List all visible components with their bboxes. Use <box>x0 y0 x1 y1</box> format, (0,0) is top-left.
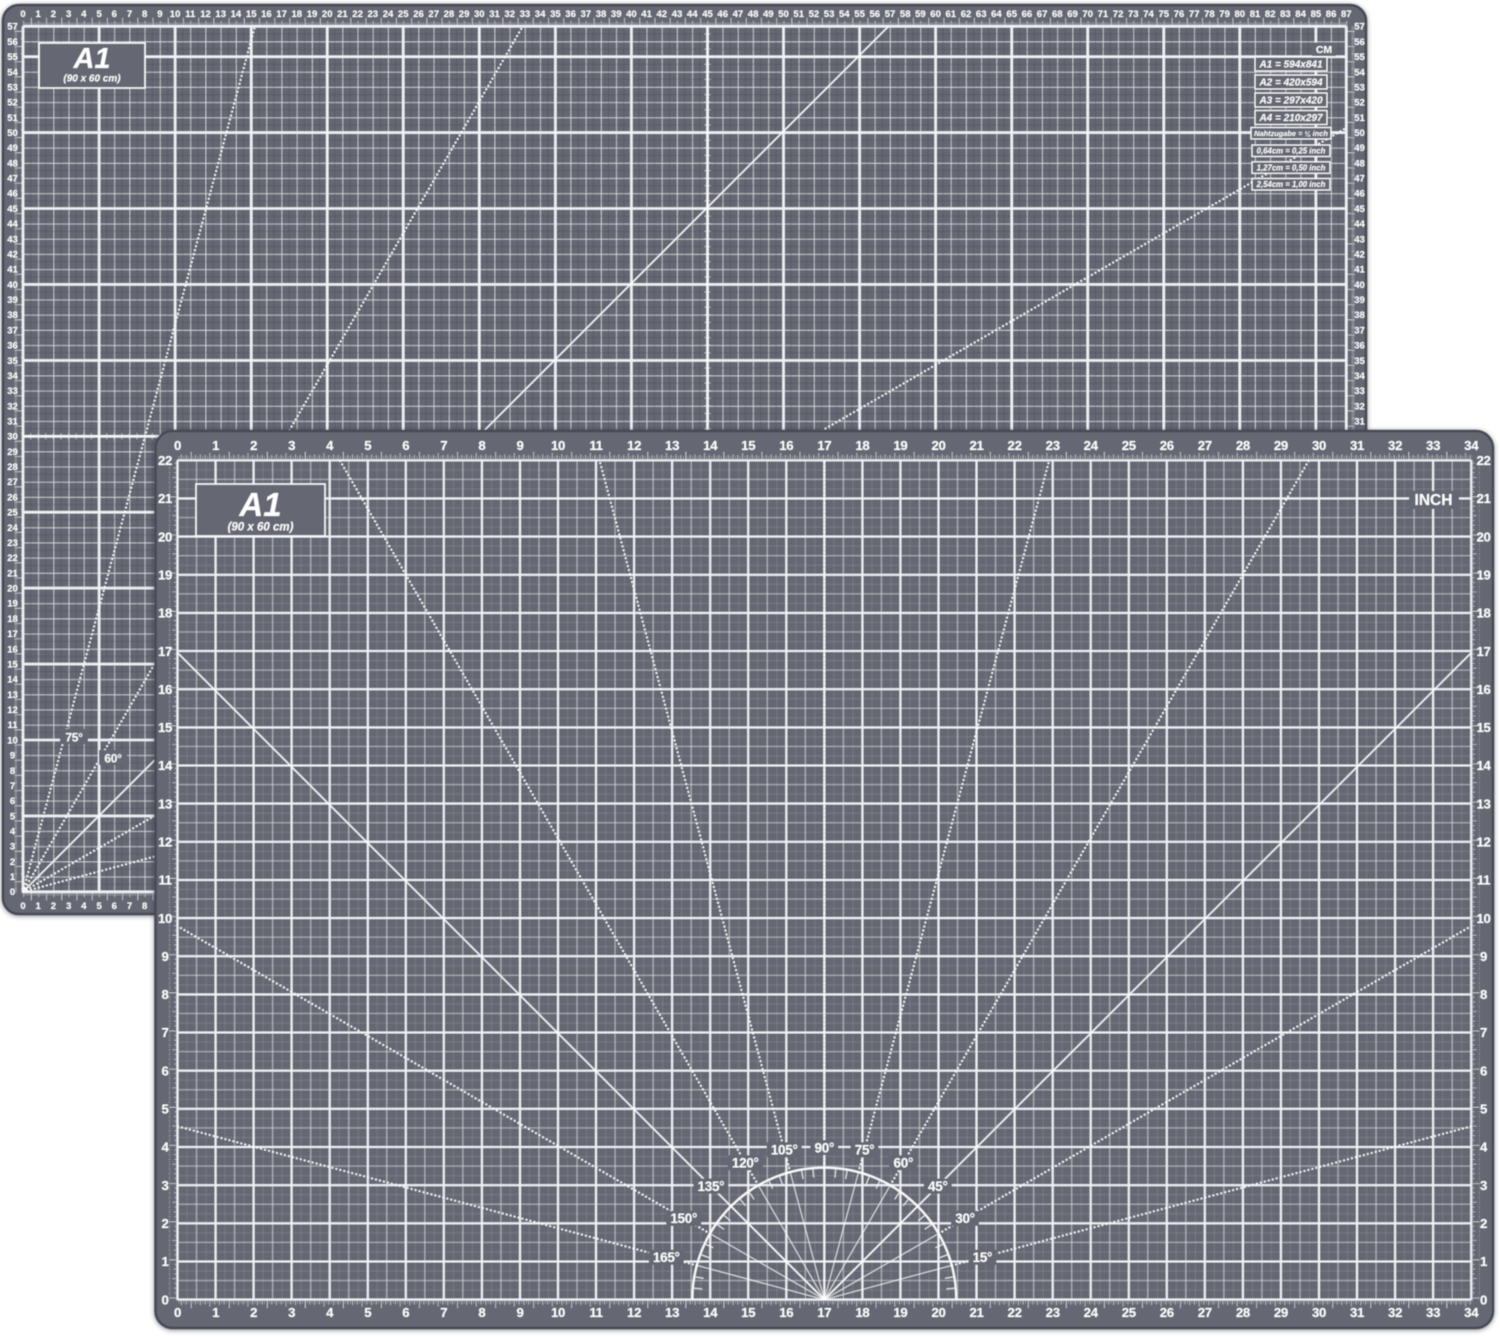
svg-text:0: 0 <box>10 887 15 898</box>
svg-text:3: 3 <box>288 438 295 453</box>
svg-text:16: 16 <box>261 9 272 20</box>
svg-text:17: 17 <box>1476 644 1490 659</box>
svg-text:90°: 90° <box>815 1140 835 1155</box>
svg-text:75°: 75° <box>65 731 83 745</box>
svg-text:47: 47 <box>1354 174 1365 185</box>
svg-text:26: 26 <box>7 492 18 503</box>
svg-text:35: 35 <box>550 9 561 20</box>
svg-text:62: 62 <box>961 9 972 20</box>
svg-text:6: 6 <box>112 901 117 912</box>
svg-text:10: 10 <box>158 911 172 926</box>
svg-text:21: 21 <box>969 1305 983 1320</box>
svg-text:31: 31 <box>1354 417 1365 428</box>
svg-text:48: 48 <box>748 9 759 20</box>
svg-text:5: 5 <box>10 811 16 822</box>
svg-text:26: 26 <box>1160 438 1174 453</box>
svg-text:25: 25 <box>1122 1305 1136 1320</box>
svg-text:35: 35 <box>7 356 18 367</box>
svg-text:15: 15 <box>246 9 257 20</box>
svg-text:20: 20 <box>1476 529 1490 544</box>
svg-text:9: 9 <box>516 1305 523 1320</box>
svg-text:19: 19 <box>7 599 18 610</box>
svg-text:1: 1 <box>10 872 16 883</box>
svg-text:0: 0 <box>20 901 25 912</box>
svg-text:78: 78 <box>1204 9 1215 20</box>
svg-text:9: 9 <box>161 949 168 964</box>
svg-text:28: 28 <box>1236 1305 1250 1320</box>
svg-text:25: 25 <box>7 508 18 519</box>
svg-text:20: 20 <box>931 438 945 453</box>
svg-text:4: 4 <box>326 1305 334 1320</box>
svg-text:150°: 150° <box>670 1211 697 1226</box>
svg-text:1: 1 <box>212 1305 219 1320</box>
svg-text:28: 28 <box>7 462 18 473</box>
svg-text:21: 21 <box>337 9 348 20</box>
svg-text:60°: 60° <box>894 1156 914 1171</box>
svg-text:6: 6 <box>402 438 409 453</box>
svg-text:2: 2 <box>51 9 56 20</box>
svg-text:18: 18 <box>1476 606 1490 621</box>
svg-text:81: 81 <box>1250 9 1261 20</box>
svg-text:8: 8 <box>142 901 147 912</box>
svg-text:52: 52 <box>1354 98 1365 109</box>
svg-text:43: 43 <box>672 9 683 20</box>
svg-text:INCH: INCH <box>1415 492 1453 509</box>
svg-text:59: 59 <box>915 9 926 20</box>
svg-text:6: 6 <box>402 1305 409 1320</box>
svg-text:22: 22 <box>158 453 172 468</box>
svg-text:2: 2 <box>10 857 15 868</box>
svg-text:19: 19 <box>893 438 907 453</box>
svg-text:0: 0 <box>161 1292 168 1307</box>
svg-text:3: 3 <box>1480 1178 1487 1193</box>
svg-text:44: 44 <box>687 9 698 20</box>
svg-text:37: 37 <box>7 325 18 336</box>
svg-text:11: 11 <box>1477 873 1490 888</box>
svg-text:5: 5 <box>364 438 371 453</box>
svg-text:32: 32 <box>7 401 18 412</box>
svg-text:21: 21 <box>969 438 983 453</box>
svg-text:49: 49 <box>7 143 18 154</box>
svg-text:46: 46 <box>7 189 18 200</box>
svg-text:75°: 75° <box>855 1143 875 1158</box>
svg-text:5: 5 <box>96 9 102 20</box>
svg-text:5: 5 <box>364 1305 371 1320</box>
svg-text:45: 45 <box>7 204 18 215</box>
svg-text:53: 53 <box>1354 82 1365 93</box>
svg-text:33: 33 <box>520 9 531 20</box>
svg-text:7: 7 <box>127 9 132 20</box>
svg-text:17: 17 <box>817 438 831 453</box>
svg-text:7: 7 <box>440 438 447 453</box>
svg-text:30: 30 <box>474 9 485 20</box>
svg-text:12: 12 <box>158 835 172 850</box>
svg-text:6: 6 <box>1480 1063 1487 1078</box>
svg-text:30: 30 <box>1312 1305 1326 1320</box>
svg-text:34: 34 <box>1464 1305 1479 1320</box>
svg-text:10: 10 <box>551 1305 565 1320</box>
svg-text:79: 79 <box>1219 9 1230 20</box>
svg-text:18: 18 <box>292 9 303 20</box>
svg-text:46: 46 <box>717 9 728 20</box>
svg-text:42: 42 <box>7 250 18 261</box>
svg-text:56: 56 <box>870 9 881 20</box>
svg-text:36: 36 <box>565 9 576 20</box>
svg-text:16: 16 <box>7 644 18 655</box>
svg-text:27: 27 <box>1198 1305 1212 1320</box>
svg-text:39: 39 <box>611 9 622 20</box>
svg-text:18: 18 <box>855 438 869 453</box>
svg-text:34: 34 <box>7 371 18 382</box>
svg-text:44: 44 <box>7 219 18 230</box>
svg-text:39: 39 <box>1354 295 1365 306</box>
svg-text:(90 x 60 cm): (90 x 60 cm) <box>63 74 121 85</box>
svg-text:60°: 60° <box>104 752 122 766</box>
svg-text:64: 64 <box>991 9 1002 20</box>
svg-text:17: 17 <box>817 1305 831 1320</box>
svg-text:29: 29 <box>1274 438 1288 453</box>
svg-text:49: 49 <box>1354 143 1365 154</box>
svg-text:15: 15 <box>7 660 18 671</box>
svg-text:5: 5 <box>96 901 102 912</box>
svg-text:67: 67 <box>1037 9 1048 20</box>
svg-text:1: 1 <box>212 438 219 453</box>
svg-text:36: 36 <box>1354 341 1365 352</box>
svg-text:53: 53 <box>7 82 18 93</box>
svg-text:120°: 120° <box>732 1156 759 1171</box>
svg-text:45: 45 <box>702 9 713 20</box>
svg-text:30°: 30° <box>955 1211 975 1226</box>
svg-text:10: 10 <box>170 9 181 20</box>
svg-text:3: 3 <box>66 9 71 20</box>
svg-text:4: 4 <box>1480 1140 1488 1155</box>
svg-text:27: 27 <box>1198 438 1212 453</box>
svg-text:16: 16 <box>158 682 172 697</box>
svg-text:34: 34 <box>1354 371 1365 382</box>
svg-text:33: 33 <box>1426 1305 1440 1320</box>
svg-text:20: 20 <box>931 1305 945 1320</box>
svg-text:19: 19 <box>1476 568 1490 583</box>
svg-text:37: 37 <box>1354 325 1365 336</box>
svg-text:86: 86 <box>1326 9 1337 20</box>
svg-text:1: 1 <box>161 1254 168 1269</box>
svg-text:22: 22 <box>352 9 363 20</box>
svg-text:3: 3 <box>161 1178 168 1193</box>
svg-text:A1 = 594x841: A1 = 594x841 <box>1258 60 1323 71</box>
svg-text:15: 15 <box>741 1305 755 1320</box>
svg-text:2: 2 <box>250 1305 257 1320</box>
svg-text:19: 19 <box>893 1305 907 1320</box>
svg-text:5: 5 <box>1480 1102 1487 1117</box>
svg-text:14: 14 <box>7 675 18 686</box>
svg-text:34: 34 <box>1464 438 1479 453</box>
svg-text:57: 57 <box>7 22 18 33</box>
svg-text:11: 11 <box>7 720 18 731</box>
svg-text:8: 8 <box>478 438 485 453</box>
svg-text:61: 61 <box>946 9 957 20</box>
svg-text:135°: 135° <box>698 1179 725 1194</box>
svg-text:15°: 15° <box>973 1250 993 1265</box>
svg-text:33: 33 <box>1426 438 1440 453</box>
svg-text:11: 11 <box>158 873 171 888</box>
svg-text:24: 24 <box>7 523 18 534</box>
svg-text:73: 73 <box>1128 9 1139 20</box>
svg-text:31: 31 <box>489 9 500 20</box>
svg-text:8: 8 <box>142 9 147 20</box>
svg-text:22: 22 <box>7 553 18 564</box>
svg-text:41: 41 <box>7 265 18 276</box>
svg-text:58: 58 <box>900 9 911 20</box>
svg-text:4: 4 <box>81 901 87 912</box>
svg-text:9: 9 <box>10 751 15 762</box>
svg-text:14: 14 <box>703 1305 718 1320</box>
svg-text:40: 40 <box>7 280 18 291</box>
svg-text:(90 x 60 cm): (90 x 60 cm) <box>228 522 294 534</box>
svg-text:56: 56 <box>7 37 18 48</box>
svg-text:18: 18 <box>7 614 18 625</box>
svg-text:55: 55 <box>7 52 18 63</box>
svg-text:20: 20 <box>322 9 333 20</box>
svg-text:83: 83 <box>1280 9 1291 20</box>
svg-text:75: 75 <box>1159 9 1170 20</box>
svg-text:A4 = 210x297: A4 = 210x297 <box>1258 113 1323 124</box>
svg-text:A1: A1 <box>238 486 281 523</box>
svg-text:66: 66 <box>1022 9 1033 20</box>
svg-text:51: 51 <box>793 9 804 20</box>
svg-text:3: 3 <box>66 901 71 912</box>
svg-text:37: 37 <box>581 9 592 20</box>
svg-text:14: 14 <box>703 438 718 453</box>
svg-text:22: 22 <box>1008 438 1022 453</box>
svg-text:14: 14 <box>231 9 242 20</box>
svg-text:7: 7 <box>161 1025 168 1040</box>
svg-text:57: 57 <box>885 9 896 20</box>
svg-text:13: 13 <box>215 9 226 20</box>
svg-text:50: 50 <box>7 128 18 139</box>
svg-text:2,54cm = 1,00 inch: 2,54cm = 1,00 inch <box>1256 180 1326 189</box>
svg-text:25: 25 <box>1122 438 1136 453</box>
svg-text:44: 44 <box>1354 219 1365 230</box>
svg-text:82: 82 <box>1265 9 1276 20</box>
svg-text:49: 49 <box>763 9 774 20</box>
svg-text:19: 19 <box>307 9 318 20</box>
svg-text:18: 18 <box>158 606 172 621</box>
svg-text:6: 6 <box>161 1063 168 1078</box>
svg-text:55: 55 <box>854 9 865 20</box>
svg-text:13: 13 <box>665 1305 679 1320</box>
svg-text:71: 71 <box>1098 9 1109 20</box>
svg-text:21: 21 <box>158 491 172 506</box>
svg-text:17: 17 <box>276 9 287 20</box>
svg-text:21: 21 <box>7 568 18 579</box>
svg-text:23: 23 <box>368 9 379 20</box>
svg-text:34: 34 <box>535 9 546 20</box>
svg-text:80: 80 <box>1235 9 1246 20</box>
svg-text:A2 = 420x594: A2 = 420x594 <box>1258 78 1323 89</box>
svg-text:43: 43 <box>1354 234 1365 245</box>
svg-text:33: 33 <box>1354 386 1365 397</box>
svg-text:29: 29 <box>459 9 470 20</box>
svg-text:69: 69 <box>1067 9 1078 20</box>
svg-text:0: 0 <box>1480 1292 1487 1307</box>
svg-text:8: 8 <box>478 1305 485 1320</box>
svg-text:16: 16 <box>779 438 793 453</box>
svg-text:4: 4 <box>326 438 334 453</box>
svg-text:23: 23 <box>7 538 18 549</box>
svg-text:7: 7 <box>10 781 15 792</box>
svg-text:57: 57 <box>1354 22 1365 33</box>
svg-text:4: 4 <box>161 1140 169 1155</box>
svg-text:28: 28 <box>444 9 455 20</box>
svg-text:31: 31 <box>1350 438 1364 453</box>
svg-text:3: 3 <box>288 1305 295 1320</box>
svg-text:28: 28 <box>1236 438 1250 453</box>
svg-text:12: 12 <box>1476 835 1490 850</box>
svg-text:40: 40 <box>626 9 637 20</box>
svg-text:30: 30 <box>7 432 18 443</box>
svg-text:8: 8 <box>10 766 15 777</box>
svg-text:31: 31 <box>7 417 18 428</box>
svg-text:45°: 45° <box>928 1179 948 1194</box>
svg-text:Nahtzugabe = ¼ inch: Nahtzugabe = ¼ inch <box>1254 129 1328 138</box>
svg-text:16: 16 <box>779 1305 793 1320</box>
svg-text:45: 45 <box>1354 204 1365 215</box>
svg-text:20: 20 <box>158 529 172 544</box>
svg-text:32: 32 <box>1354 401 1365 412</box>
svg-text:68: 68 <box>1052 9 1063 20</box>
svg-text:15: 15 <box>1476 720 1490 735</box>
svg-text:0: 0 <box>174 438 181 453</box>
svg-text:4: 4 <box>10 827 16 838</box>
svg-text:56: 56 <box>1354 37 1365 48</box>
svg-text:0: 0 <box>174 1305 181 1320</box>
svg-text:1: 1 <box>36 901 42 912</box>
svg-text:20: 20 <box>7 584 18 595</box>
svg-text:12: 12 <box>7 705 18 716</box>
svg-text:2: 2 <box>51 901 56 912</box>
svg-text:9: 9 <box>516 438 523 453</box>
svg-text:6: 6 <box>112 9 117 20</box>
svg-text:23: 23 <box>1046 438 1060 453</box>
svg-text:2: 2 <box>1480 1216 1487 1231</box>
svg-text:11: 11 <box>589 438 602 453</box>
svg-text:12: 12 <box>627 438 641 453</box>
svg-text:29: 29 <box>7 447 18 458</box>
svg-text:10: 10 <box>551 438 565 453</box>
svg-text:85: 85 <box>1311 9 1322 20</box>
svg-text:54: 54 <box>7 67 18 78</box>
svg-text:39: 39 <box>7 295 18 306</box>
svg-text:17: 17 <box>7 629 18 640</box>
svg-text:7: 7 <box>1480 1025 1487 1040</box>
svg-text:9: 9 <box>157 9 162 20</box>
svg-text:24: 24 <box>383 9 394 20</box>
svg-text:0,64cm = 0,25 inch: 0,64cm = 0,25 inch <box>1257 147 1326 156</box>
svg-text:72: 72 <box>1113 9 1124 20</box>
svg-text:36: 36 <box>7 341 18 352</box>
svg-text:54: 54 <box>1354 67 1365 78</box>
svg-text:32: 32 <box>1388 1305 1402 1320</box>
svg-text:24: 24 <box>1084 438 1099 453</box>
svg-text:16: 16 <box>1476 682 1490 697</box>
svg-text:27: 27 <box>428 9 439 20</box>
svg-text:165°: 165° <box>653 1250 680 1265</box>
svg-text:51: 51 <box>1354 113 1365 124</box>
svg-text:26: 26 <box>1160 1305 1174 1320</box>
svg-text:38: 38 <box>7 310 18 321</box>
svg-text:48: 48 <box>7 158 18 169</box>
svg-text:53: 53 <box>824 9 835 20</box>
svg-text:6: 6 <box>10 796 15 807</box>
svg-text:21: 21 <box>1476 491 1490 506</box>
svg-text:38: 38 <box>1354 310 1365 321</box>
svg-text:14: 14 <box>1476 758 1491 773</box>
svg-text:0: 0 <box>20 9 25 20</box>
svg-text:2: 2 <box>161 1216 168 1231</box>
svg-text:13: 13 <box>665 438 679 453</box>
svg-text:10: 10 <box>7 735 18 746</box>
svg-text:14: 14 <box>158 758 173 773</box>
svg-text:41: 41 <box>641 9 652 20</box>
svg-text:32: 32 <box>504 9 515 20</box>
svg-text:29: 29 <box>1274 1305 1288 1320</box>
svg-text:60: 60 <box>930 9 941 20</box>
svg-text:77: 77 <box>1189 9 1200 20</box>
svg-text:33: 33 <box>7 386 18 397</box>
svg-text:105°: 105° <box>771 1143 798 1158</box>
svg-text:15: 15 <box>741 438 755 453</box>
svg-text:87: 87 <box>1341 9 1352 20</box>
svg-text:11: 11 <box>185 9 196 20</box>
svg-text:74: 74 <box>1143 9 1154 20</box>
svg-text:9: 9 <box>1480 949 1487 964</box>
svg-text:12: 12 <box>200 9 211 20</box>
svg-text:70: 70 <box>1082 9 1093 20</box>
svg-text:65: 65 <box>1006 9 1017 20</box>
svg-text:42: 42 <box>657 9 668 20</box>
svg-text:7: 7 <box>127 901 132 912</box>
svg-text:8: 8 <box>1480 987 1487 1002</box>
svg-text:48: 48 <box>1354 158 1365 169</box>
svg-text:41: 41 <box>1354 265 1365 276</box>
svg-text:1,27cm = 0,50 inch: 1,27cm = 0,50 inch <box>1257 163 1326 172</box>
svg-text:7: 7 <box>440 1305 447 1320</box>
svg-text:52: 52 <box>7 98 18 109</box>
svg-text:76: 76 <box>1174 9 1185 20</box>
svg-text:35: 35 <box>1354 356 1365 367</box>
svg-text:38: 38 <box>596 9 607 20</box>
svg-text:46: 46 <box>1354 189 1365 200</box>
svg-text:11: 11 <box>589 1305 602 1320</box>
svg-text:23: 23 <box>1046 1305 1060 1320</box>
svg-text:84: 84 <box>1295 9 1306 20</box>
svg-text:12: 12 <box>627 1305 641 1320</box>
svg-text:30: 30 <box>1312 438 1326 453</box>
svg-text:2: 2 <box>250 438 257 453</box>
svg-text:42: 42 <box>1354 250 1365 261</box>
svg-text:47: 47 <box>733 9 744 20</box>
svg-text:4: 4 <box>81 9 87 20</box>
svg-text:CM: CM <box>1316 44 1333 56</box>
svg-text:50: 50 <box>1354 128 1365 139</box>
svg-text:18: 18 <box>855 1305 869 1320</box>
svg-text:26: 26 <box>413 9 424 20</box>
svg-text:10: 10 <box>1476 911 1490 926</box>
svg-text:19: 19 <box>158 568 172 583</box>
svg-text:50: 50 <box>778 9 789 20</box>
svg-text:13: 13 <box>158 796 172 811</box>
svg-text:3: 3 <box>10 842 15 853</box>
